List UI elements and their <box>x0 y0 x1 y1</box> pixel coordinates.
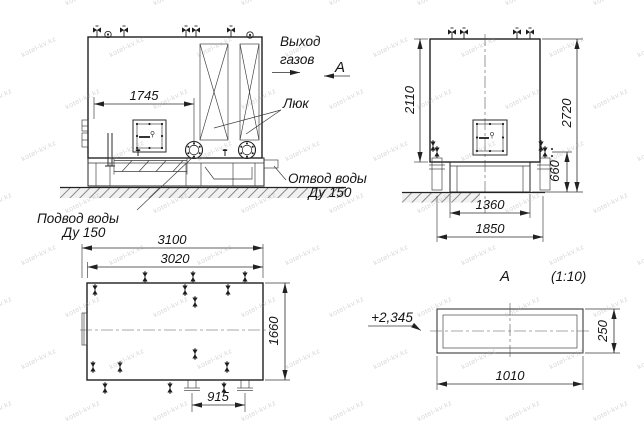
dimension-section-width: 1010 <box>437 356 583 390</box>
hatch-label: Люк <box>282 96 309 111</box>
hatch-panel <box>240 44 259 140</box>
front-labels: Выход газов А Люк Отвод воды Ду 150 Подв… <box>37 34 367 240</box>
roof-valves-side <box>448 28 534 39</box>
elevation-value: +2,345 <box>371 310 413 325</box>
down-pipe <box>105 133 115 166</box>
grate-ladder <box>114 158 187 175</box>
water-outlet-label-1: Отвод воды <box>288 171 367 186</box>
dim-plan-width: 1660 <box>266 316 281 346</box>
dimension-side-shell-height: 2110 <box>402 39 428 162</box>
plan-valves <box>90 271 247 394</box>
water-outlet-leader <box>274 166 286 180</box>
boiler-shell-front <box>88 37 262 158</box>
drawing-sheet: 1745 Выход газов А Люк Отвод воды Ду 150… <box>0 0 644 430</box>
base-frame-side <box>450 162 530 192</box>
gas-outlet-label-2: газов <box>280 52 314 67</box>
section-a-view: А (1:10) +2,345 250 1010 <box>368 268 620 390</box>
roof-valves <box>93 26 235 37</box>
dim-plan-flange-spacing: 915 <box>207 389 229 404</box>
dimension-section-height: 250 <box>585 309 620 353</box>
dim-plan-length-overall: 3100 <box>158 232 188 247</box>
dim-side-shell-height: 2110 <box>402 85 417 115</box>
water-inlet-label-2: Ду 150 <box>61 225 106 240</box>
view-a-marker: А <box>334 59 345 76</box>
dimension-plan-length-shell: 3020 <box>88 251 264 278</box>
water-outlet-label-2: Ду 150 <box>307 185 352 200</box>
dim-section-height: 250 <box>595 319 610 342</box>
furnace-door-front <box>133 120 166 152</box>
dim-side-total-height: 2720 <box>559 98 574 129</box>
section-title: А <box>499 268 510 285</box>
flange-stub <box>237 380 253 391</box>
dim-side-base-height: 660 <box>547 159 562 181</box>
gas-duct-stub <box>82 313 87 345</box>
hatch-leader <box>246 110 281 134</box>
dim-section-width: 1010 <box>496 368 526 383</box>
boiler-shell-plan <box>87 283 263 380</box>
water-outlet-flange <box>239 142 256 159</box>
flange-stub <box>184 380 200 391</box>
dim-front-width: 1745 <box>130 88 160 103</box>
section-scale: (1:10) <box>551 269 586 284</box>
water-inlet-label-1: Подвод воды <box>37 211 119 226</box>
dimension-plan-width: 1660 <box>265 283 290 380</box>
furnace-door-side <box>473 120 507 155</box>
anchor-bolt-icon <box>223 149 227 156</box>
dimension-plan-flange-spacing: 915 <box>192 389 245 412</box>
base-frame-front <box>88 158 278 186</box>
ground-hatch <box>60 188 346 199</box>
dim-side-overall-width: 1850 <box>476 221 506 236</box>
elevation-mark: +2,345 <box>368 310 421 331</box>
ground-hatch-side <box>402 193 545 203</box>
dim-side-base-width: 1360 <box>476 197 506 212</box>
gas-outlet-label-1: Выход <box>280 34 321 49</box>
plan-view: 3100 3020 1660 915 <box>80 232 290 412</box>
hatch-leader <box>214 110 281 128</box>
dimension-side-base-height: 660 <box>547 152 572 192</box>
left-wall-fittings <box>82 120 88 147</box>
dim-plan-length-shell: 3020 <box>161 251 191 266</box>
boiler-technical-drawing: 1745 Выход газов А Люк Отвод воды Ду 150… <box>0 0 644 430</box>
side-view: 2110 2720 660 1360 1850 <box>402 28 583 242</box>
water-pipe-left <box>429 140 445 190</box>
